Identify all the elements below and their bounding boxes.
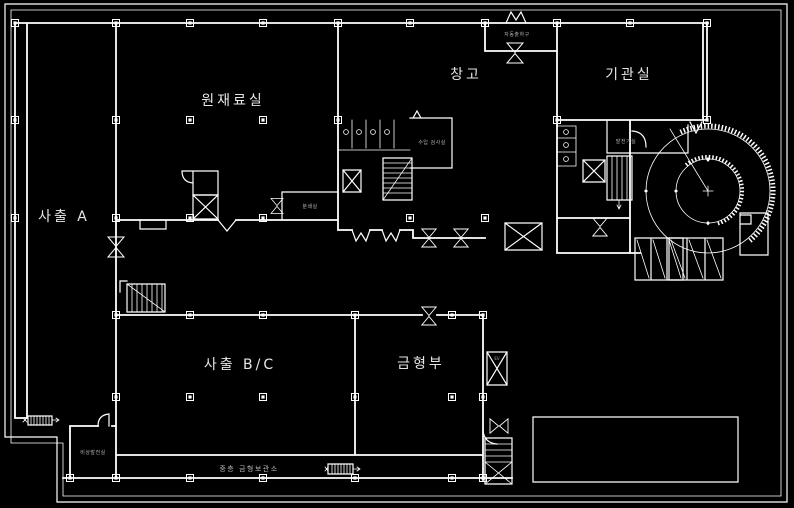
valve-top-room [507,43,523,63]
label-incoming-inspection: 수입 검사실 [418,139,446,146]
room-label-engine-room: 기관실 [605,67,653,83]
room-label-sachul-a: 사출 A [38,209,90,225]
label-mezzanine-mold-storage: 중층 금형보관소 [219,464,278,473]
central-service-core [338,111,542,250]
valve-bc-room [422,307,436,325]
room-label-sachul-bc: 사출 B/C [204,357,276,373]
auto-exit-room [506,12,526,23]
valve-crusher-door [271,199,283,214]
drawing-border [5,4,787,502]
cad-floor-plan-viewport[interactable]: 사출 A 원재료실 창고 기관실 사출 B/C 금형부 자동출하구 수입 검사실… [0,0,794,508]
bottom-block-details [23,281,738,484]
parking-bays [635,238,723,280]
valve-mold-dept [490,419,508,433]
raw-material-room-details [140,171,338,231]
label-crusher-room: 분쇄실 [302,203,317,210]
spiral-ramp-structure [644,126,773,255]
room-label-warehouse: 창고 [450,67,482,83]
valve-east-core [593,218,607,236]
floor-plan-drawing: 사출 A 원재료실 창고 기관실 사출 B/C 금형부 자동출하구 수입 검사실… [0,0,794,508]
label-freight-elevator: EV [494,356,500,361]
label-generator-room: 발전기실 [616,138,636,145]
room-label-raw-material: 원재료실 [201,93,265,109]
room-label-mold-dept: 금형부 [397,356,445,372]
label-auto-shipping-exit: 자동출하구 [504,31,530,38]
label-corner-utility-room: 비상발전실 [80,449,106,456]
